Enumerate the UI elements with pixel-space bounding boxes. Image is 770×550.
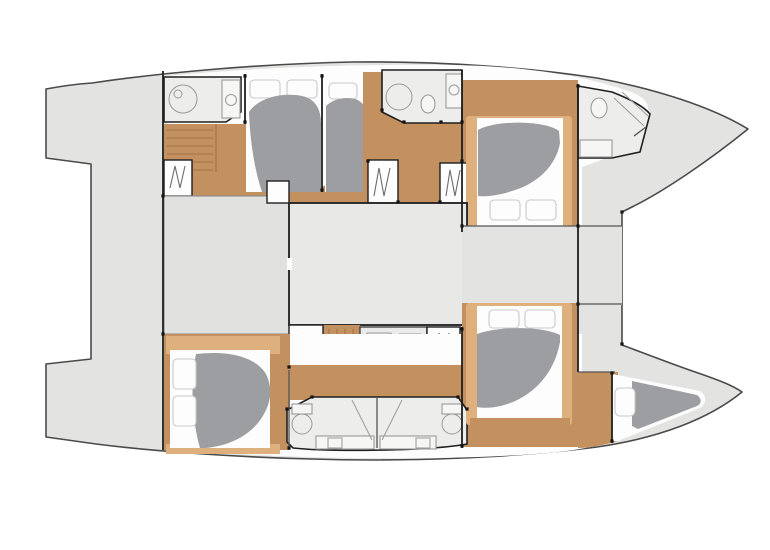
saloon-door-gap — [287, 258, 292, 270]
stbd-aft-cabin — [166, 336, 280, 454]
saloon-corner-locker — [267, 181, 289, 203]
port-aft-bathroom — [164, 77, 241, 122]
floorplan-page — [0, 0, 770, 550]
pillow — [489, 310, 519, 328]
pillow — [490, 200, 520, 220]
pillow — [526, 200, 556, 220]
crossbeam-deck — [462, 226, 622, 305]
saloon-main-block — [289, 203, 467, 325]
pillow — [615, 388, 635, 416]
duvet — [326, 98, 363, 192]
saloon-left-block — [164, 196, 289, 334]
port-mid-bathroom — [382, 70, 462, 123]
stbd-aft-bathrooms — [287, 397, 467, 450]
stbd-corridor-floor — [289, 365, 470, 400]
port-aft-berths — [246, 74, 363, 192]
pillow — [329, 83, 357, 99]
pillow — [173, 359, 196, 389]
pillow — [173, 396, 196, 426]
stbd-forward-cabin — [466, 303, 572, 444]
pillow — [525, 310, 555, 328]
pillow — [250, 80, 280, 98]
port-forward-cabin — [466, 116, 572, 230]
duvet — [249, 95, 321, 192]
floorplan-canvas — [0, 0, 770, 550]
